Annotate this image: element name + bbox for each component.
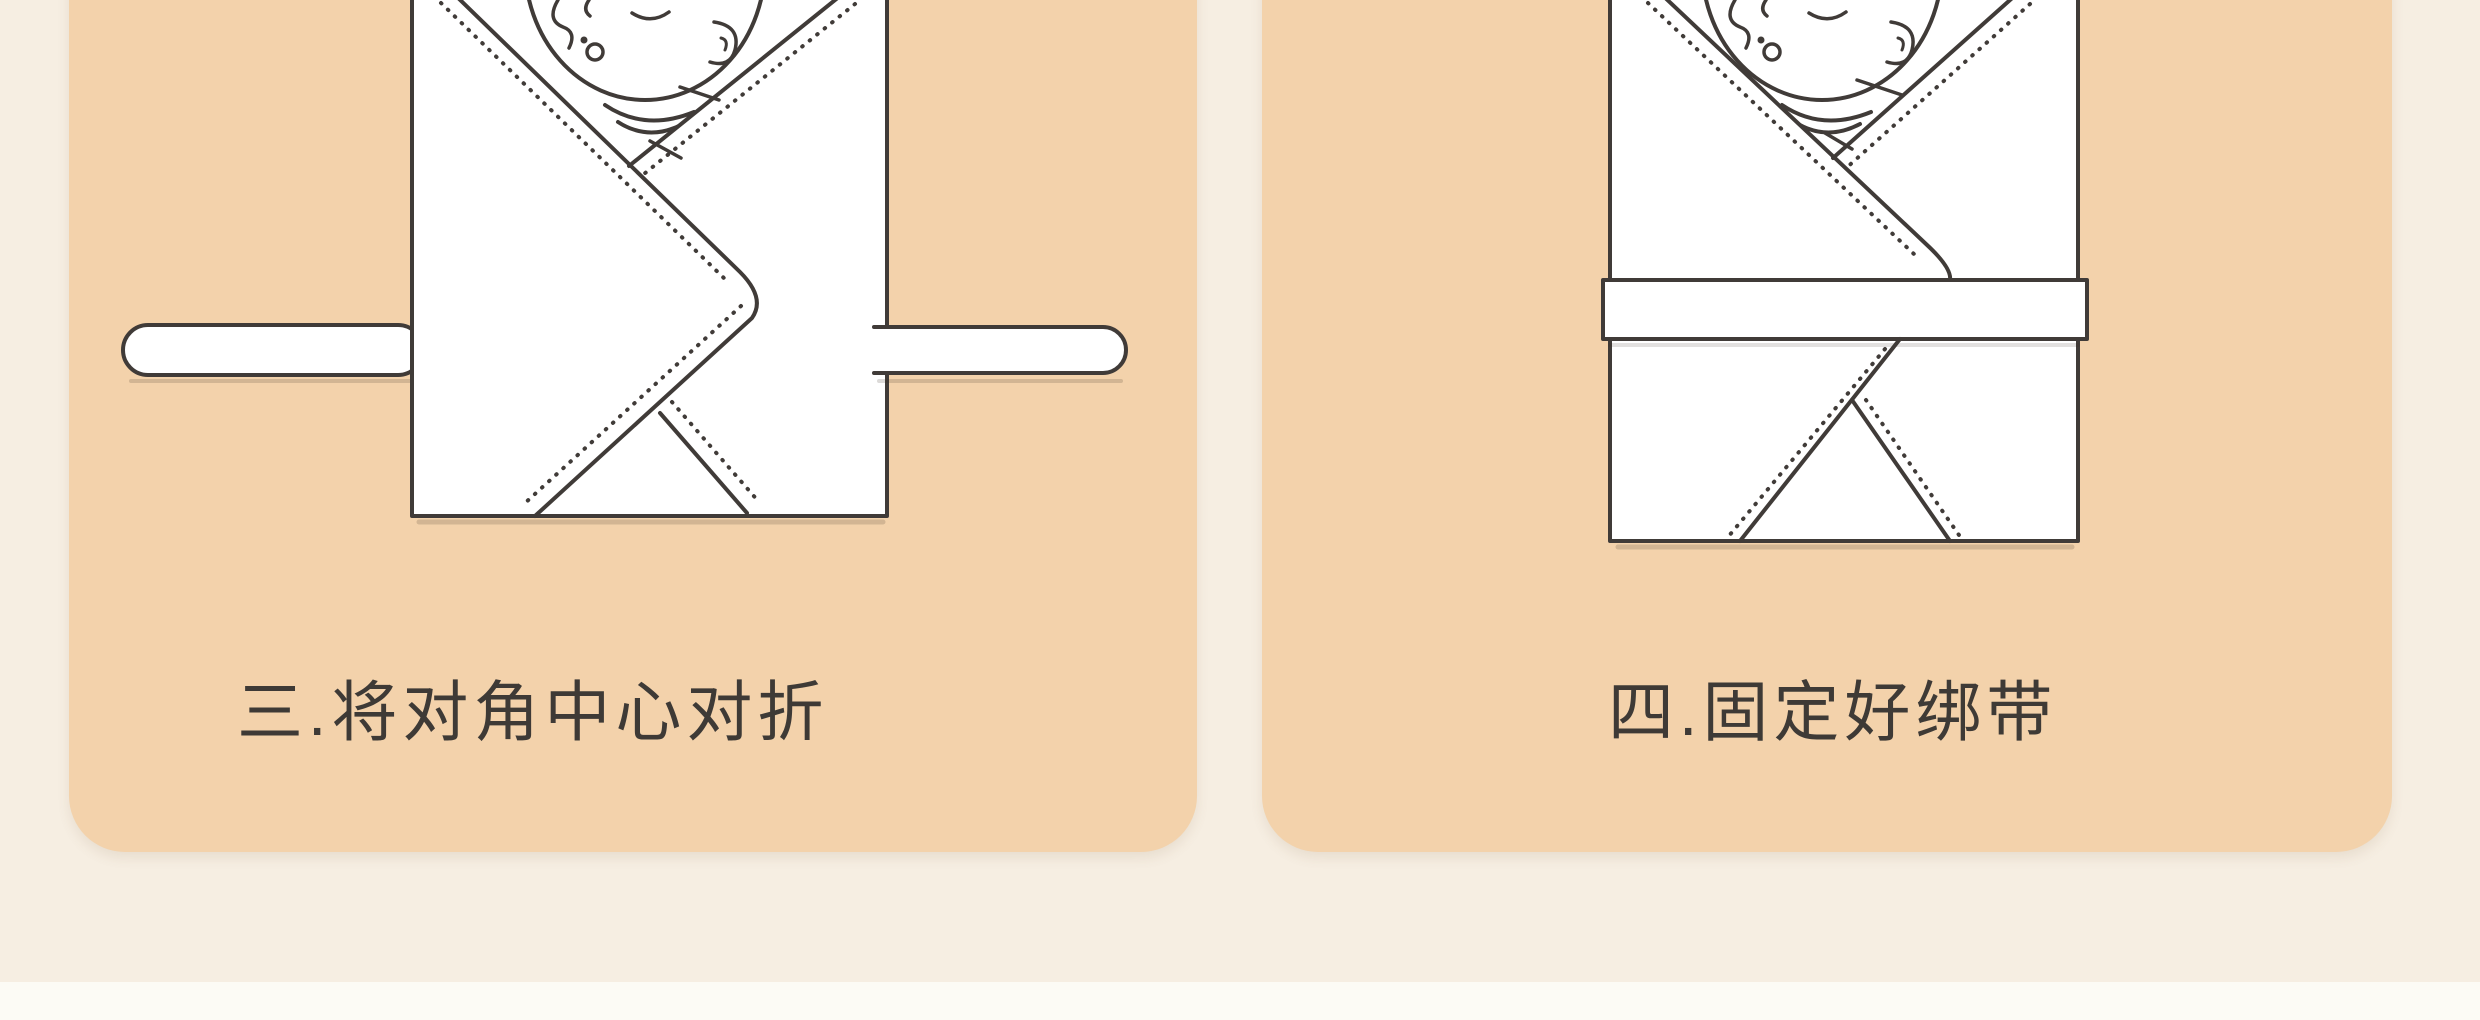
step4-caption: 四.固定好绑带 xyxy=(1608,676,2057,748)
waist-band xyxy=(1603,280,2087,345)
swaddle-wrap xyxy=(412,0,887,522)
swaddle-instruction-image: 三.将对角中心对折 四.固定好绑带 xyxy=(0,0,2480,1020)
step3-caption: 三.将对角中心对折 xyxy=(237,676,828,748)
tie-strap-right xyxy=(874,327,1126,381)
bottom-page-divider xyxy=(0,982,2480,1020)
swaddle-wrap xyxy=(1610,0,2078,547)
step3-swaddle-illustration xyxy=(69,0,1197,620)
step4-swaddle-illustration xyxy=(1262,0,2392,620)
tie-strap-left xyxy=(123,325,423,381)
